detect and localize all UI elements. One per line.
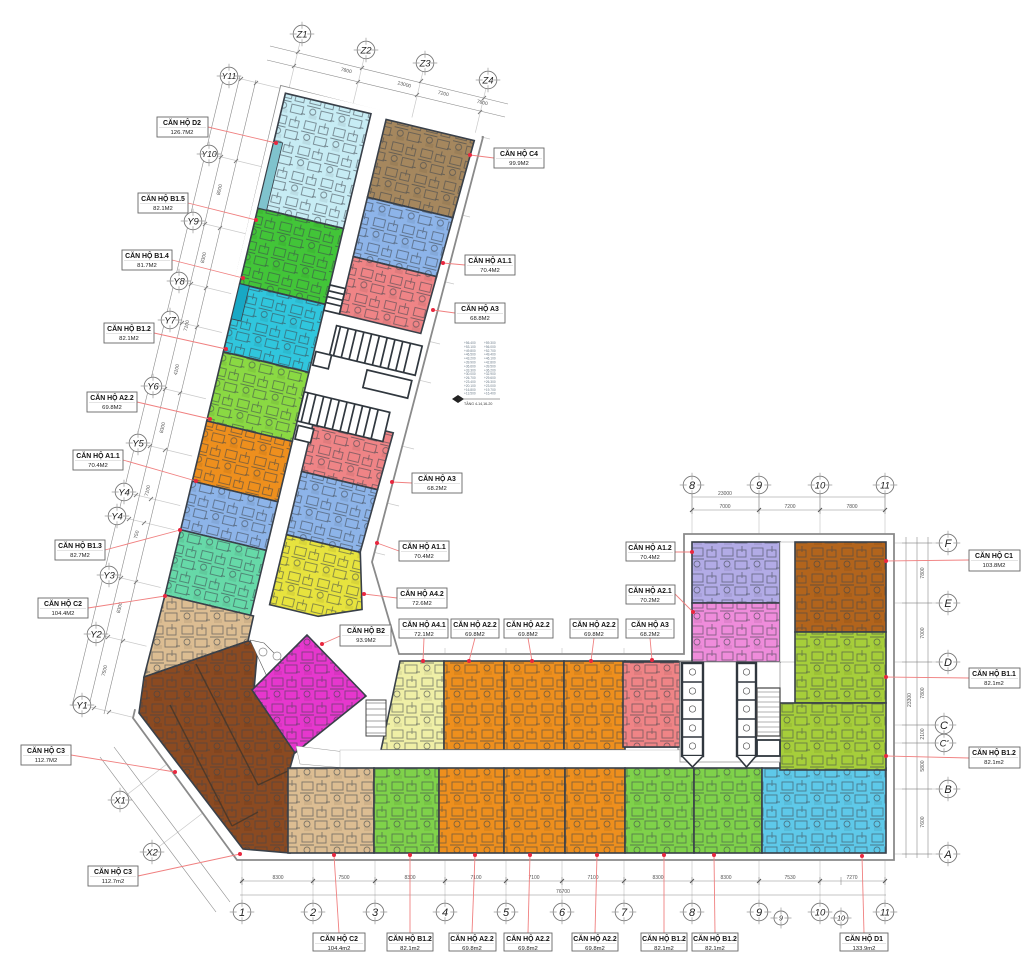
svg-text:Y2: Y2 — [90, 629, 102, 640]
svg-text:23300: 23300 — [907, 693, 913, 707]
svg-text:7000: 7000 — [719, 504, 730, 510]
svg-text:CĂN HỘ B1.2: CĂN HỘ B1.2 — [107, 324, 151, 333]
svg-text:+13.500: +13.500 — [464, 392, 476, 396]
svg-text:72.6M2: 72.6M2 — [412, 601, 432, 607]
svg-text:Y7: Y7 — [164, 315, 176, 326]
svg-text:C': C' — [940, 738, 950, 749]
svg-text:82.1m2: 82.1m2 — [984, 760, 1004, 766]
svg-text:103.8M2: 103.8M2 — [983, 563, 1006, 569]
svg-text:A: A — [943, 849, 951, 861]
svg-text:CĂN HỘ A2.2: CĂN HỘ A2.2 — [450, 934, 494, 943]
svg-text:82.1M2: 82.1M2 — [153, 206, 173, 212]
svg-text:CĂN HỘ B1.4: CĂN HỘ B1.4 — [125, 251, 169, 260]
svg-text:CĂN HỘ A3: CĂN HỘ A3 — [631, 620, 669, 629]
svg-text:CĂN HỘ A1.1: CĂN HỘ A1.1 — [76, 451, 120, 460]
svg-text:10: 10 — [815, 907, 826, 918]
svg-text:Y4: Y4 — [118, 487, 130, 498]
svg-text:TẦNG 4-14,16-20: TẦNG 4-14,16-20 — [464, 402, 492, 406]
svg-text:112.7m2: 112.7m2 — [102, 879, 125, 885]
svg-text:CĂN HỘ A3: CĂN HỘ A3 — [461, 304, 499, 313]
svg-text:D: D — [944, 657, 952, 669]
svg-text:2100: 2100 — [920, 728, 926, 739]
svg-text:Y3: Y3 — [103, 570, 115, 581]
svg-text:70.4M2: 70.4M2 — [414, 554, 434, 560]
svg-text:CĂN HỘ D2: CĂN HỘ D2 — [163, 118, 201, 127]
svg-text:72.1M2: 72.1M2 — [414, 632, 434, 638]
svg-text:126.7M2: 126.7M2 — [171, 130, 194, 136]
svg-text:7: 7 — [621, 907, 628, 919]
svg-text:69.8M2: 69.8M2 — [102, 405, 122, 411]
svg-text:70.2M2: 70.2M2 — [640, 598, 660, 604]
svg-text:Y1: Y1 — [76, 700, 88, 711]
svg-text:CĂN HỘ C4: CĂN HỘ C4 — [500, 149, 538, 158]
svg-text:9: 9 — [779, 916, 783, 923]
svg-text:+16.400: +16.400 — [484, 392, 496, 396]
svg-text:CĂN HỘ B1.2: CĂN HỘ B1.2 — [972, 748, 1016, 757]
svg-text:82.7M2: 82.7M2 — [70, 553, 90, 559]
svg-text:82.1M2: 82.1M2 — [119, 336, 139, 342]
svg-text:CĂN HỘ C2: CĂN HỘ C2 — [44, 599, 82, 608]
svg-text:104.4m2: 104.4m2 — [328, 946, 351, 952]
svg-text:8300: 8300 — [720, 875, 731, 881]
svg-text:CĂN HỘ A2.2: CĂN HỘ A2.2 — [506, 620, 550, 629]
svg-text:82.1m2: 82.1m2 — [705, 946, 725, 952]
svg-text:104.4M2: 104.4M2 — [52, 611, 75, 617]
svg-text:CĂN HỘ B1.2: CĂN HỘ B1.2 — [642, 934, 686, 943]
svg-text:11: 11 — [880, 480, 890, 491]
svg-text:CĂN HỘ A3: CĂN HỘ A3 — [418, 474, 456, 483]
svg-text:CĂN HỘ A2.2: CĂN HỘ A2.2 — [90, 393, 134, 402]
svg-text:8300: 8300 — [272, 875, 283, 881]
svg-text:68.2M2: 68.2M2 — [427, 486, 447, 492]
svg-text:X1: X1 — [113, 795, 126, 806]
svg-text:CĂN HỘ A2.2: CĂN HỘ A2.2 — [453, 620, 497, 629]
svg-text:1: 1 — [239, 907, 245, 919]
svg-text:68.8M2: 68.8M2 — [470, 316, 490, 322]
svg-text:CĂN HỘ A1.2: CĂN HỘ A1.2 — [628, 543, 672, 552]
svg-text:11: 11 — [880, 907, 890, 918]
svg-text:5: 5 — [503, 907, 510, 919]
svg-text:99.9M2: 99.9M2 — [509, 161, 529, 167]
svg-text:CĂN HỘ C2: CĂN HỘ C2 — [320, 934, 358, 943]
svg-text:7100: 7100 — [528, 875, 539, 881]
svg-text:Y10: Y10 — [201, 149, 217, 159]
svg-text:10: 10 — [837, 916, 845, 923]
svg-text:CĂN HỘ C1: CĂN HỘ C1 — [975, 551, 1013, 560]
svg-text:68.2M2: 68.2M2 — [640, 632, 660, 638]
svg-text:CĂN HỘ C3: CĂN HỘ C3 — [94, 867, 132, 876]
svg-text:69.8M2: 69.8M2 — [518, 632, 538, 638]
svg-text:B: B — [944, 784, 951, 796]
svg-text:82.1m2: 82.1m2 — [400, 946, 420, 952]
svg-text:CĂN HỘ B1.1: CĂN HỘ B1.1 — [972, 669, 1016, 678]
svg-text:Y9: Y9 — [187, 216, 199, 227]
svg-text:8: 8 — [689, 480, 696, 492]
svg-text:CĂN HỘ A1.1: CĂN HỘ A1.1 — [468, 256, 512, 265]
svg-text:CĂN HỘ B1.2: CĂN HỘ B1.2 — [693, 934, 737, 943]
svg-text:6: 6 — [559, 907, 566, 919]
svg-text:70.4M2: 70.4M2 — [480, 268, 500, 274]
svg-text:CĂN HỘ A1.1: CĂN HỘ A1.1 — [402, 542, 446, 551]
svg-text:7530: 7530 — [784, 875, 795, 881]
svg-text:CĂN HỘ D1: CĂN HỘ D1 — [845, 934, 883, 943]
svg-text:E: E — [944, 598, 952, 610]
svg-text:CĂN HỘ A2.1: CĂN HỘ A2.1 — [628, 586, 672, 595]
svg-text:7800: 7800 — [846, 504, 857, 510]
svg-text:Y8: Y8 — [173, 276, 185, 287]
svg-text:Y4: Y4 — [111, 511, 123, 522]
svg-text:10: 10 — [815, 480, 826, 491]
svg-text:CĂN HỘ A2.2: CĂN HỘ A2.2 — [572, 620, 616, 629]
svg-text:69.8m2: 69.8m2 — [518, 946, 538, 952]
svg-text:X2: X2 — [145, 847, 158, 858]
svg-text:69.8M2: 69.8M2 — [465, 632, 485, 638]
svg-text:7000: 7000 — [920, 627, 926, 638]
svg-text:CĂN HỘ A2.2: CĂN HỘ A2.2 — [573, 934, 617, 943]
svg-text:70.4M2: 70.4M2 — [88, 463, 108, 469]
svg-text:5800: 5800 — [920, 760, 926, 771]
svg-text:Z3: Z3 — [418, 58, 431, 69]
svg-text:82.1m2: 82.1m2 — [984, 681, 1004, 687]
svg-text:82.1m2: 82.1m2 — [654, 946, 674, 952]
svg-text:69.8M2: 69.8M2 — [584, 632, 604, 638]
svg-text:Y6: Y6 — [147, 381, 159, 392]
svg-text:76700: 76700 — [556, 889, 570, 895]
svg-text:C: C — [940, 720, 948, 732]
svg-text:CĂN HỘ A4.2: CĂN HỘ A4.2 — [400, 589, 444, 598]
svg-text:7200: 7200 — [784, 504, 795, 510]
svg-text:93.9M2: 93.9M2 — [356, 638, 376, 644]
svg-text:7100: 7100 — [587, 875, 598, 881]
svg-text:Y5: Y5 — [132, 438, 144, 449]
svg-text:4: 4 — [442, 907, 448, 919]
svg-text:3: 3 — [372, 907, 379, 919]
svg-text:CĂN HỘ B1.3: CĂN HỘ B1.3 — [58, 541, 102, 550]
svg-text:CĂN HỘ B2: CĂN HỘ B2 — [347, 626, 385, 635]
svg-text:81.7M2: 81.7M2 — [137, 263, 157, 269]
svg-text:69.8m2: 69.8m2 — [585, 946, 605, 952]
svg-text:CĂN HỘ A2.2: CĂN HỘ A2.2 — [506, 934, 550, 943]
svg-text:7800: 7800 — [920, 687, 926, 698]
svg-text:7100: 7100 — [470, 875, 481, 881]
svg-text:8300: 8300 — [652, 875, 663, 881]
svg-text:CĂN HỘ B1.2: CĂN HỘ B1.2 — [388, 934, 432, 943]
svg-text:133.9m2: 133.9m2 — [853, 946, 876, 952]
svg-text:9: 9 — [756, 480, 762, 492]
svg-text:7800: 7800 — [920, 567, 926, 578]
svg-text:112.7M2: 112.7M2 — [35, 758, 58, 764]
svg-text:70.4M2: 70.4M2 — [640, 555, 660, 561]
svg-text:CĂN HỘ B1.5: CĂN HỘ B1.5 — [141, 194, 185, 203]
svg-text:7600: 7600 — [920, 816, 926, 827]
svg-text:7500: 7500 — [338, 875, 349, 881]
svg-text:69.8m2: 69.8m2 — [462, 946, 482, 952]
svg-text:8: 8 — [689, 907, 696, 919]
svg-text:7270: 7270 — [846, 875, 857, 881]
svg-text:23000: 23000 — [718, 491, 732, 497]
svg-text:9: 9 — [756, 907, 762, 919]
svg-text:2: 2 — [309, 907, 316, 919]
svg-text:CĂN HỘ C3: CĂN HỘ C3 — [27, 746, 65, 755]
svg-text:Z1: Z1 — [295, 29, 307, 40]
svg-text:Y11: Y11 — [222, 71, 237, 81]
svg-text:CĂN HỘ A4.1: CĂN HỘ A4.1 — [402, 620, 446, 629]
svg-text:Z4: Z4 — [481, 75, 493, 86]
svg-text:Z2: Z2 — [359, 45, 372, 56]
